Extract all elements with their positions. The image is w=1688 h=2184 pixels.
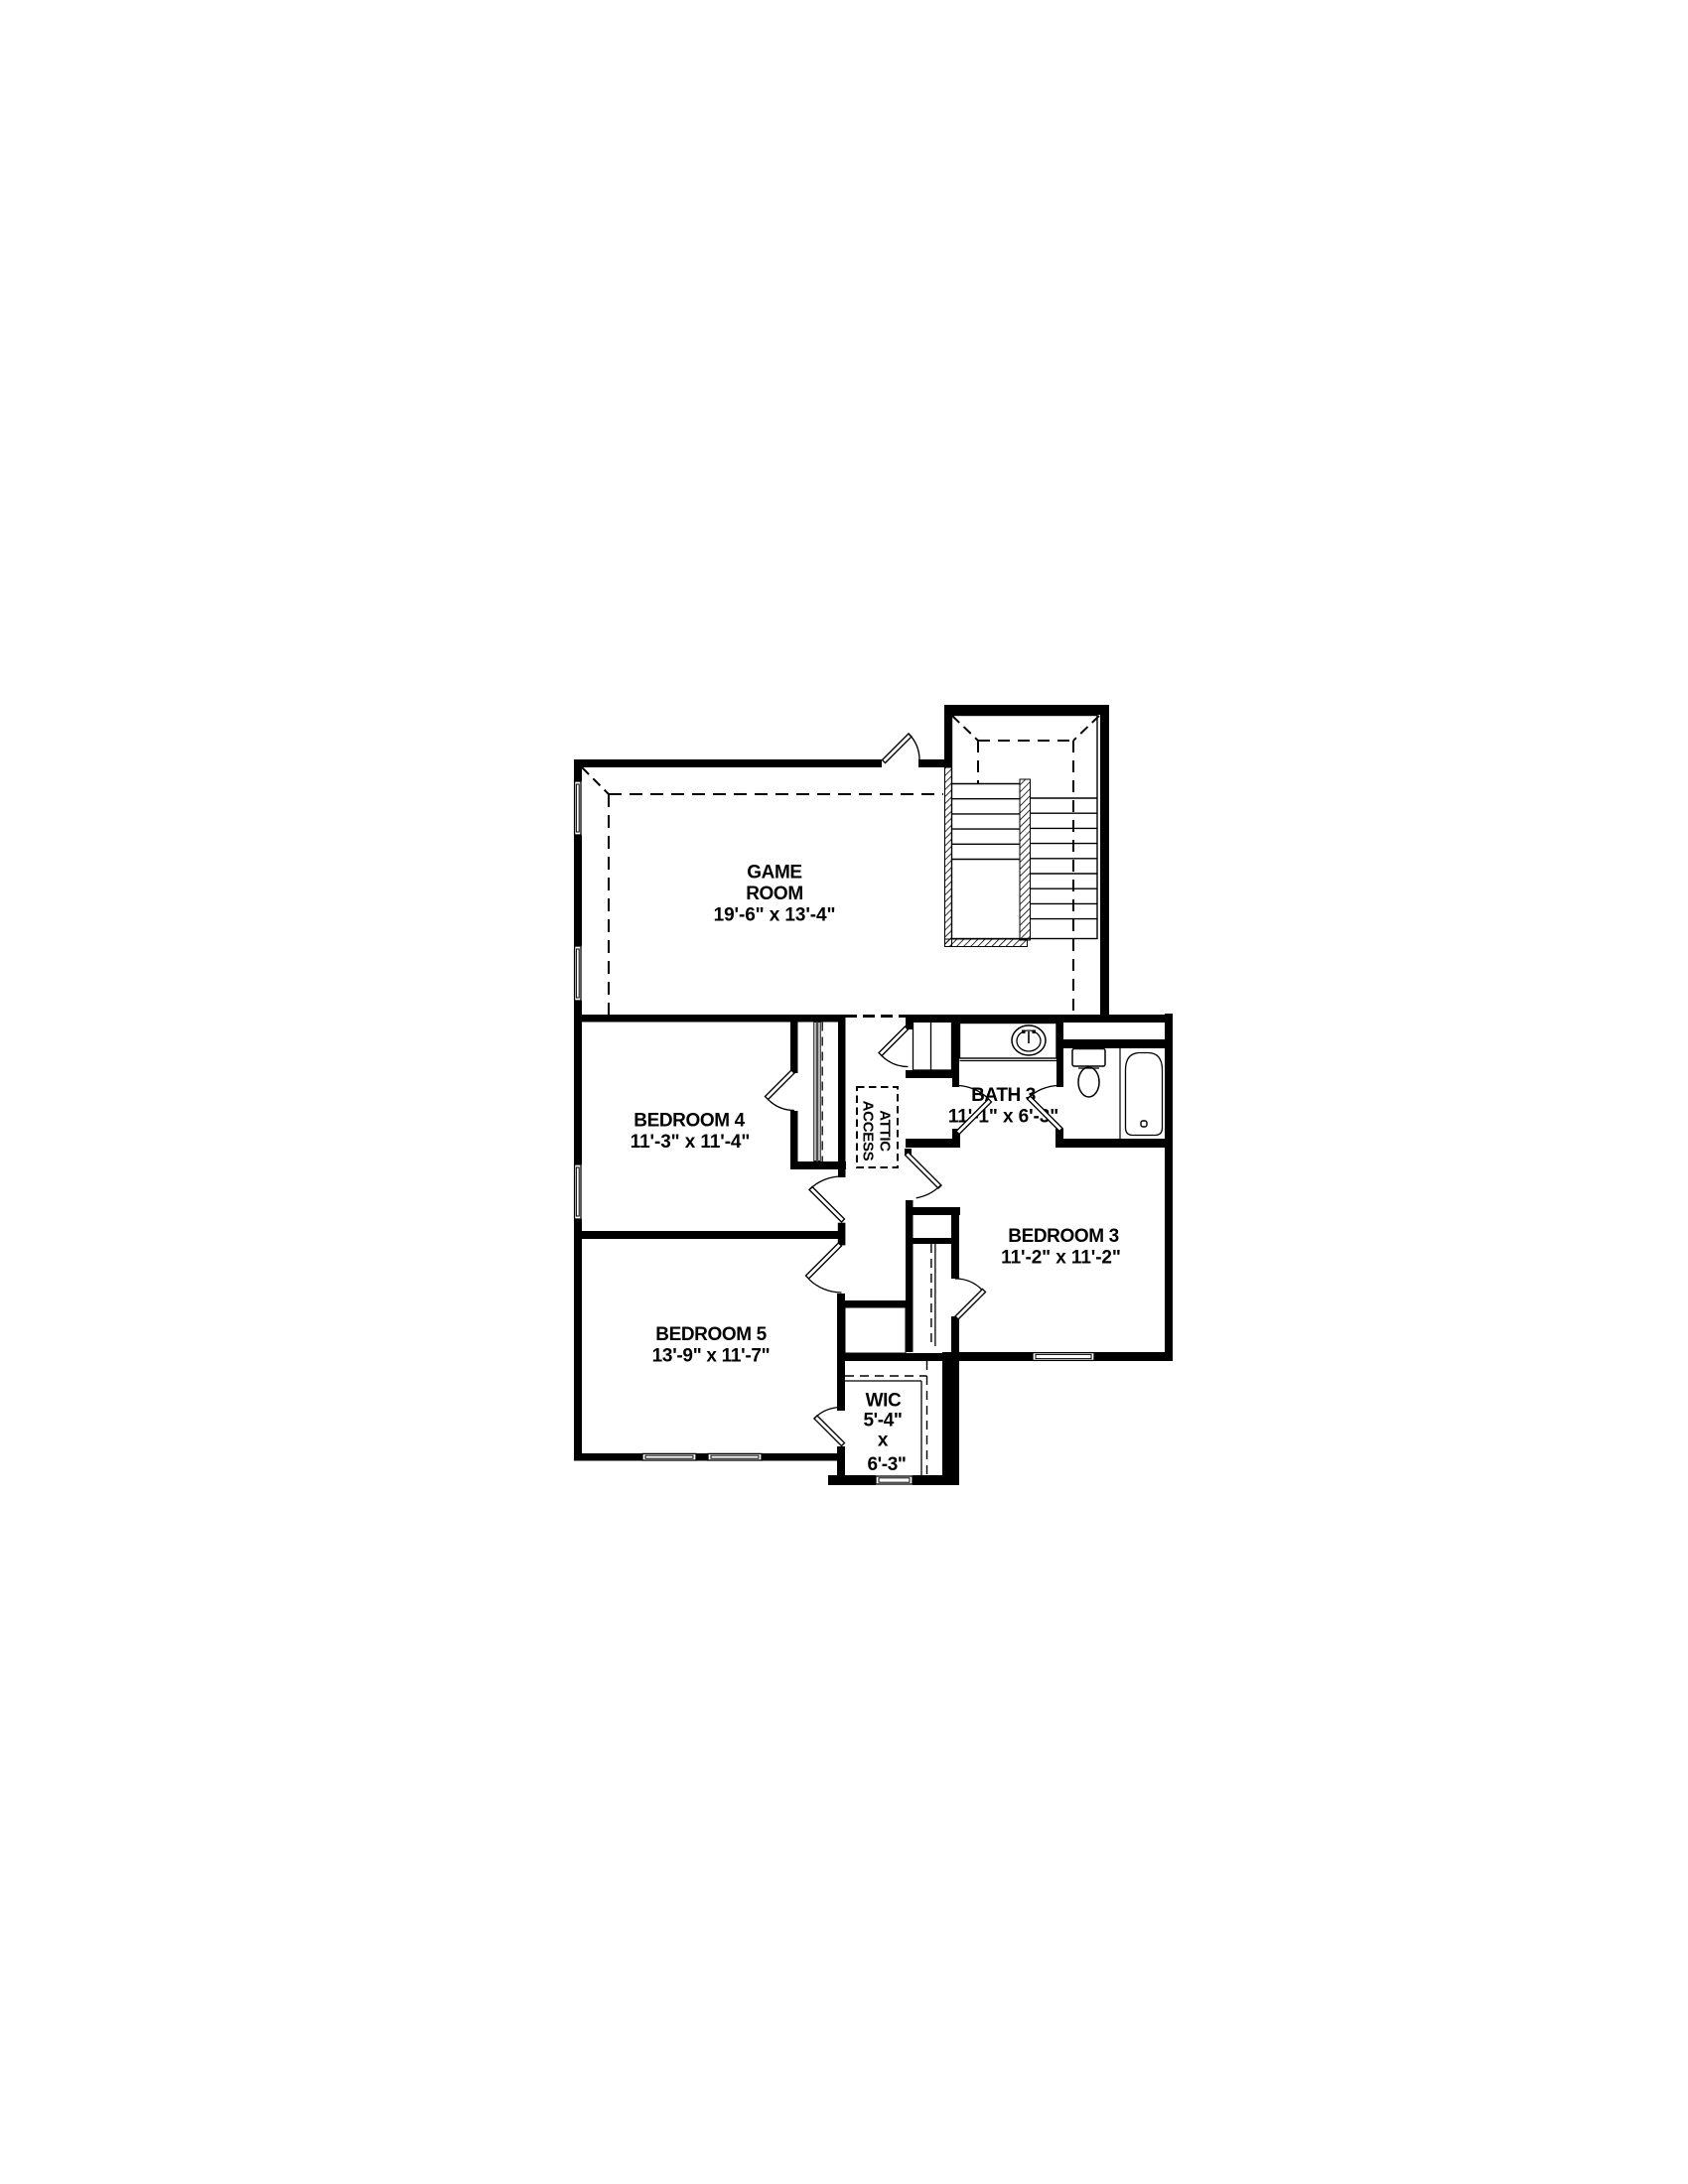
- svg-text:BEDROOM 4: BEDROOM 4: [633, 1111, 745, 1132]
- svg-text:WIC: WIC: [866, 1391, 902, 1412]
- svg-text:5'-4": 5'-4": [864, 1411, 903, 1432]
- svg-text:BEDROOM 3: BEDROOM 3: [1008, 1226, 1118, 1247]
- svg-text:BATH 3: BATH 3: [971, 1085, 1036, 1106]
- svg-text:ROOM: ROOM: [746, 884, 803, 904]
- svg-text:x: x: [878, 1431, 889, 1451]
- svg-text:11'-3" x 11'-4": 11'-3" x 11'-4": [631, 1132, 751, 1153]
- svg-text:11'-2" x 11'-2": 11'-2" x 11'-2": [1001, 1248, 1121, 1269]
- svg-text:19'-6" x 13'-4": 19'-6" x 13'-4": [714, 905, 836, 926]
- svg-text:BEDROOM 5: BEDROOM 5: [655, 1324, 767, 1345]
- svg-text:GAME: GAME: [747, 863, 801, 884]
- svg-text:13'-9" x 11'-7": 13'-9" x 11'-7": [652, 1346, 771, 1367]
- svg-text:6'-3": 6'-3": [868, 1454, 907, 1475]
